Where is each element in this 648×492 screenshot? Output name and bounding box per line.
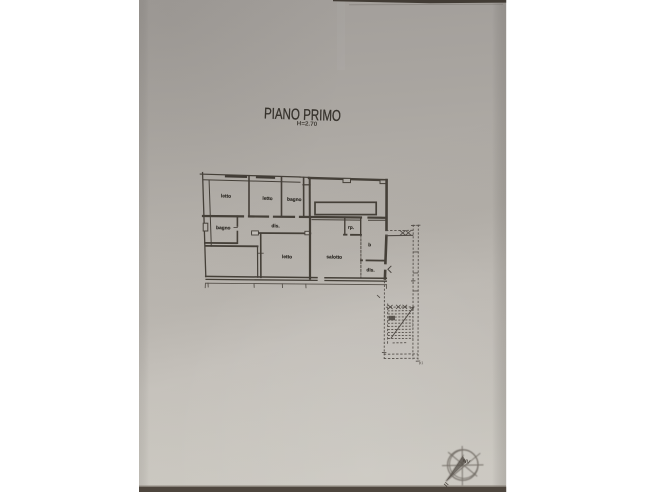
svg-text:letto: letto [221,193,231,199]
svg-text:H=2.70: H=2.70 [297,120,318,128]
svg-text:rp.: rp. [348,226,354,231]
svg-text:bagno: bagno [287,197,302,203]
svg-text:p1: p1 [419,361,423,365]
svg-text:letto: letto [282,254,292,260]
svg-text:dis.: dis. [366,267,374,273]
svg-text:bagno: bagno [216,225,231,231]
svg-text:letto: letto [262,196,272,202]
svg-text:b: b [368,242,371,248]
svg-text:dis.: dis. [271,223,279,229]
svg-text:salotto: salotto [326,254,342,260]
